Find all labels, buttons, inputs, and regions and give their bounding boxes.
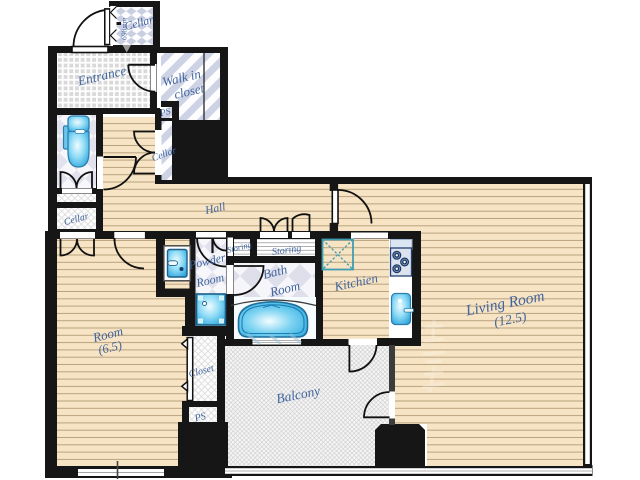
svg-text:698mm: 698mm — [120, 17, 129, 40]
